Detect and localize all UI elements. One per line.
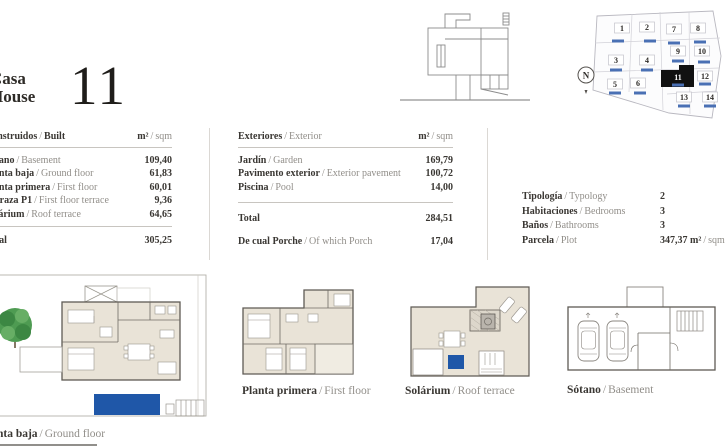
svg-text:5: 5 — [613, 80, 617, 89]
built-table: Construidos/Built m²/sqm Sótano/Basement… — [0, 130, 172, 247]
svg-text:7: 7 — [672, 25, 676, 34]
site-plot-9: 9 — [671, 46, 686, 63]
plan-basement — [565, 283, 719, 375]
pool-shape — [94, 394, 160, 415]
light-well — [627, 287, 663, 307]
svg-text:3: 3 — [614, 56, 618, 65]
site-plot-3: 3 — [609, 55, 624, 72]
table-row: Planta baja/Ground floor61,83 — [0, 167, 172, 180]
car-icon — [607, 321, 628, 361]
svg-text:4: 4 — [645, 56, 649, 65]
table-row: Solárium/Roof terrace64,65 — [0, 208, 172, 221]
elevation-main-body — [428, 28, 508, 75]
jacuzzi-shape — [448, 355, 464, 369]
site-plot-5: 5 — [608, 79, 623, 95]
svg-text:14: 14 — [706, 93, 714, 102]
car-icon — [578, 321, 599, 361]
plan-caption-basement: Sótano/Basement — [567, 384, 653, 396]
table-row: Sótano/Basement109,40 — [0, 154, 172, 167]
kitchen-counter — [158, 362, 176, 374]
total-row: Total284,51 — [238, 212, 453, 225]
rule — [0, 147, 172, 148]
total-row: Total305,25 — [0, 234, 172, 247]
table-divider-left — [209, 128, 210, 260]
elevation-drawing — [393, 8, 533, 103]
site-plot-12: 12 — [698, 71, 713, 86]
plan-caption-ground: Planta baja/Ground floor — [0, 428, 105, 440]
porch-row: De cual Porche/Of which Porch 17,04 — [238, 235, 453, 248]
site-map: N 1 2 7 8 3 4 9 10 5 6 11 12 13 14 — [572, 6, 726, 124]
title-es: Casa — [0, 70, 35, 88]
unit-number: 11 — [70, 58, 127, 113]
plan-caption-solarium: Solárium/Roof terrace — [405, 385, 515, 397]
spec-sheet-page: Casa House 11 — [0, 0, 726, 447]
table-row: Terraza P1/First floor terrace9,36 — [0, 194, 172, 207]
table-row: Piscina/Pool14,00 — [238, 181, 453, 194]
plan-first-floor — [240, 286, 360, 380]
elevation-lower-block — [481, 75, 508, 89]
svg-text:1: 1 — [620, 24, 624, 33]
plan-solarium — [403, 283, 531, 379]
side-annex — [20, 347, 62, 372]
table-row: Parcela/Plot 347,37 m²/sqm — [522, 234, 726, 249]
sofa — [68, 310, 94, 323]
bed — [68, 348, 94, 370]
rule — [0, 226, 172, 227]
plan-caption-first: Planta primera/First floor — [242, 385, 371, 397]
table-row: Tipología/Typology2 — [522, 190, 726, 205]
table-row: Pavimento exterior/Exterior pavement100,… — [238, 167, 453, 180]
site-plot-4: 4 — [640, 55, 655, 72]
elevation-roof-step — [445, 14, 470, 28]
svg-text:10: 10 — [698, 47, 706, 56]
svg-text:8: 8 — [696, 24, 700, 33]
site-plot-14: 14 — [703, 92, 718, 108]
compass-icon: N — [578, 67, 594, 94]
svg-text:13: 13 — [680, 93, 688, 102]
bed — [266, 348, 282, 370]
site-plot-13: 13 — [677, 92, 692, 108]
svg-text:9: 9 — [676, 47, 680, 56]
table-row: Jardín/Garden169,79 — [238, 154, 453, 167]
exterior-table: Exteriores/Exterior m²/sqm Jardín/Garden… — [238, 130, 453, 248]
title-en: House — [0, 88, 35, 106]
bed — [248, 314, 270, 338]
svg-text:2: 2 — [645, 23, 649, 32]
rule — [238, 202, 453, 203]
svg-text:6: 6 — [636, 79, 640, 88]
svg-text:12: 12 — [701, 72, 709, 81]
spa-area — [470, 310, 500, 331]
table-divider-right — [487, 128, 488, 260]
svg-text:11: 11 — [674, 73, 682, 82]
rule — [238, 147, 453, 148]
svg-text:N: N — [583, 71, 590, 81]
page-title: Casa House — [0, 70, 35, 106]
cropped-edge-line — [0, 444, 97, 446]
bed — [334, 294, 350, 306]
dining-table — [128, 344, 150, 360]
terrace — [315, 344, 353, 374]
info-table: Tipología/Typology2 Habitaciones/Bedroom… — [522, 190, 726, 248]
bed — [290, 348, 306, 370]
table-row: Planta primera/First floor60,01 — [0, 181, 172, 194]
table-row: Habitaciones/Bedrooms3 — [522, 205, 726, 220]
plan-ground-floor — [0, 272, 210, 424]
table-row: Baños/Bathrooms3 — [522, 219, 726, 234]
exterior-table-header: Exteriores/Exterior m²/sqm — [238, 130, 453, 145]
built-table-header: Construidos/Built m²/sqm — [0, 130, 172, 145]
